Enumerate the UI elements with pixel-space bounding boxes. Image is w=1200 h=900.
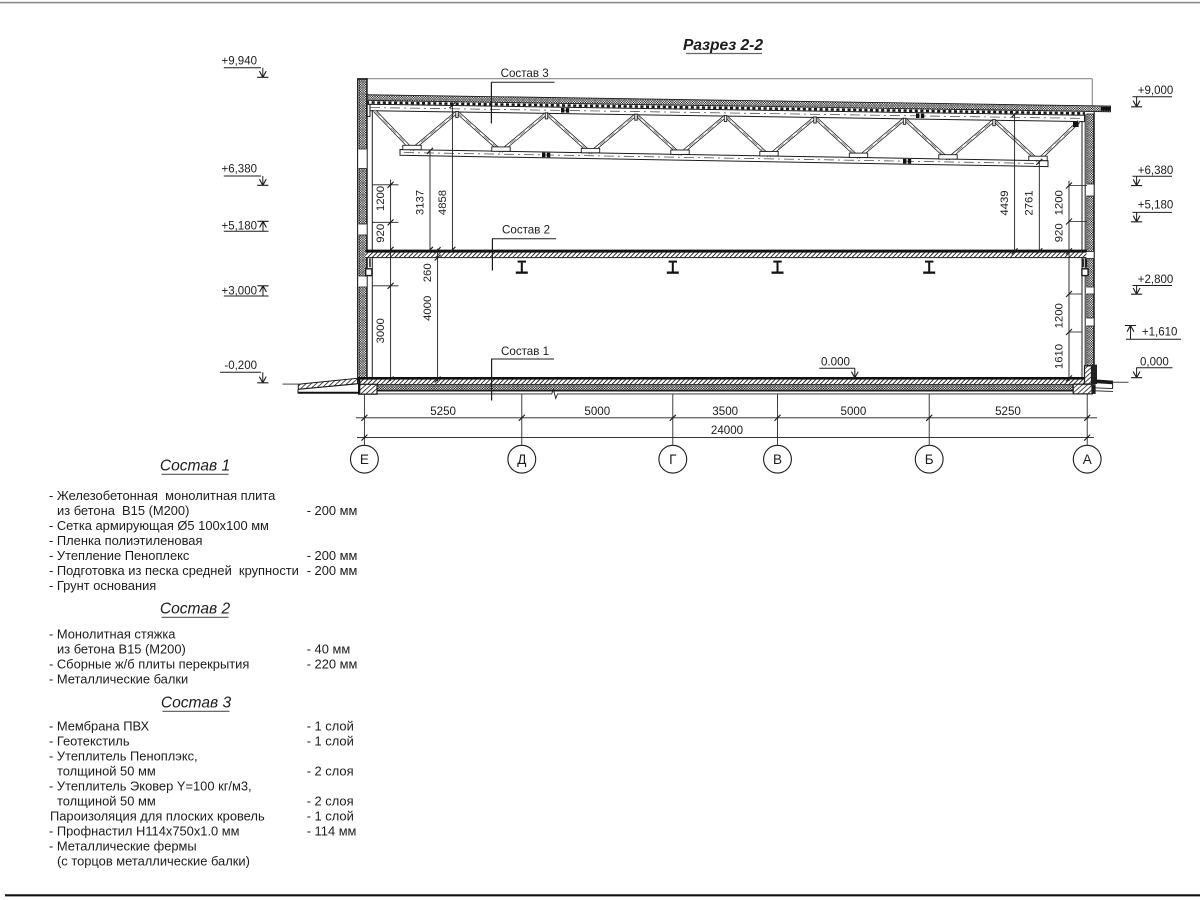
svg-text:- Утеплитель Эковер Y=100 кг/м: - Утеплитель Эковер Y=100 кг/м3, <box>49 779 252 794</box>
svg-text:1200: 1200 <box>1053 190 1065 215</box>
svg-text:- Металлические фермы: - Металлические фермы <box>49 839 197 854</box>
svg-text:- 2 слоя: - 2 слоя <box>307 764 354 779</box>
svg-text:3137: 3137 <box>414 190 426 215</box>
svg-text:4858: 4858 <box>437 190 449 215</box>
svg-text:- Мембрана ПВХ: - Мембрана ПВХ <box>49 719 150 734</box>
svg-text:920: 920 <box>1053 223 1065 242</box>
svg-text:5000: 5000 <box>584 405 610 418</box>
svg-text:- 1 слой: - 1 слой <box>307 809 354 824</box>
svg-text:+5,180: +5,180 <box>222 220 258 232</box>
svg-text:Состав 1: Состав 1 <box>501 345 549 358</box>
svg-text:+9,000: +9,000 <box>1138 85 1174 97</box>
svg-text:2761: 2761 <box>1024 190 1036 215</box>
svg-text:- 1 слой: - 1 слой <box>307 734 354 749</box>
svg-text:920: 920 <box>375 224 387 243</box>
svg-text:- Утепление Пеноплекс: - Утепление Пеноплекс <box>49 548 190 563</box>
svg-text:Состав 3: Состав 3 <box>501 67 549 80</box>
svg-text:+9,940: +9,940 <box>222 56 258 68</box>
svg-text:- Геотекстиль: - Геотекстиль <box>49 734 130 749</box>
svg-text:1610: 1610 <box>1053 344 1065 369</box>
svg-text:0.000: 0.000 <box>821 355 850 368</box>
svg-text:- Сборные ж/б плиты перекрытия: - Сборные ж/б плиты перекрытия <box>49 657 249 672</box>
svg-text:- Профнастил Н114х750х1.0 мм: - Профнастил Н114х750х1.0 мм <box>49 824 240 839</box>
svg-text:из бетона В15 (М200): из бетона В15 (М200) <box>57 642 186 657</box>
svg-text:5250: 5250 <box>995 405 1021 418</box>
svg-text:- Сетка армирующая Ø5 100х100: - Сетка армирующая Ø5 100х100 мм <box>49 518 269 533</box>
svg-text:- 220 мм: - 220 мм <box>307 657 358 672</box>
svg-text:- Подготовка из песка средней: - Подготовка из песка средней крупности <box>49 563 299 578</box>
svg-text:толщиной 50 мм: толщиной 50 мм <box>57 764 156 779</box>
svg-text:Состав 2: Состав 2 <box>502 224 550 237</box>
svg-text:Г: Г <box>669 452 677 467</box>
svg-text:(с торцов металлические балки): (с торцов металлические балки) <box>57 854 250 869</box>
svg-text:из бетона В15 (М200): из бетона В15 (М200) <box>57 503 189 518</box>
svg-text:1200: 1200 <box>375 186 387 211</box>
svg-text:- Грунт основания: - Грунт основания <box>49 578 156 593</box>
svg-text:+2,800: +2,800 <box>1138 274 1174 286</box>
svg-text:- 200 мм: - 200 мм <box>307 563 358 578</box>
svg-text:В: В <box>773 452 782 467</box>
svg-text:3000: 3000 <box>375 318 387 343</box>
svg-text:Состав 1: Состав 1 <box>160 458 230 475</box>
svg-text:- Железобетонная монолитная п: - Железобетонная монолитная плита <box>49 488 276 503</box>
svg-text:- 2 слоя: - 2 слоя <box>307 794 354 809</box>
svg-text:- 114 мм: - 114 мм <box>307 824 357 839</box>
svg-text:Состав 2: Состав 2 <box>160 601 231 618</box>
svg-text:+5,180: +5,180 <box>1138 200 1174 212</box>
svg-text:5250: 5250 <box>430 405 456 418</box>
svg-text:Состав 3: Состав 3 <box>161 695 232 712</box>
svg-text:- Металлические балки: - Металлические балки <box>49 672 188 687</box>
svg-text:Д: Д <box>517 452 526 467</box>
svg-text:Разрез 2-2: Разрез 2-2 <box>683 37 763 54</box>
svg-text:5000: 5000 <box>841 405 867 418</box>
svg-text:4439: 4439 <box>999 190 1011 215</box>
svg-text:- Монолитная стяжка: - Монолитная стяжка <box>49 627 176 642</box>
svg-text:260: 260 <box>422 263 434 282</box>
svg-text:4000: 4000 <box>422 296 434 321</box>
svg-text:+6,380: +6,380 <box>1138 165 1174 177</box>
svg-text:- 40 мм: - 40 мм <box>307 642 351 657</box>
svg-text:0,000: 0,000 <box>1140 357 1169 369</box>
svg-text:3500: 3500 <box>712 405 738 418</box>
svg-text:Е: Е <box>360 452 369 467</box>
svg-text:- 200 мм: - 200 мм <box>307 548 358 563</box>
svg-text:- Пленка полиэтиленовая: - Пленка полиэтиленовая <box>49 533 202 548</box>
svg-text:- 1 слой: - 1 слой <box>307 719 354 734</box>
svg-text:-0,200: -0,200 <box>224 360 257 372</box>
svg-text:+1,610: +1,610 <box>1142 327 1178 339</box>
svg-text:- 200 мм: - 200 мм <box>307 503 358 518</box>
svg-text:толщиной 50 мм: толщиной 50 мм <box>57 794 156 809</box>
svg-text:+6,380: +6,380 <box>222 163 258 175</box>
svg-text:24000: 24000 <box>711 424 743 437</box>
svg-text:1200: 1200 <box>1053 303 1065 328</box>
svg-text:- Утеплитель Пеноплэкс,: - Утеплитель Пеноплэкс, <box>49 749 198 764</box>
svg-text:Пароизоляция для плоских крове: Пароизоляция для плоских кровель <box>50 809 265 824</box>
svg-text:Б: Б <box>925 452 934 467</box>
svg-text:А: А <box>1083 452 1092 467</box>
